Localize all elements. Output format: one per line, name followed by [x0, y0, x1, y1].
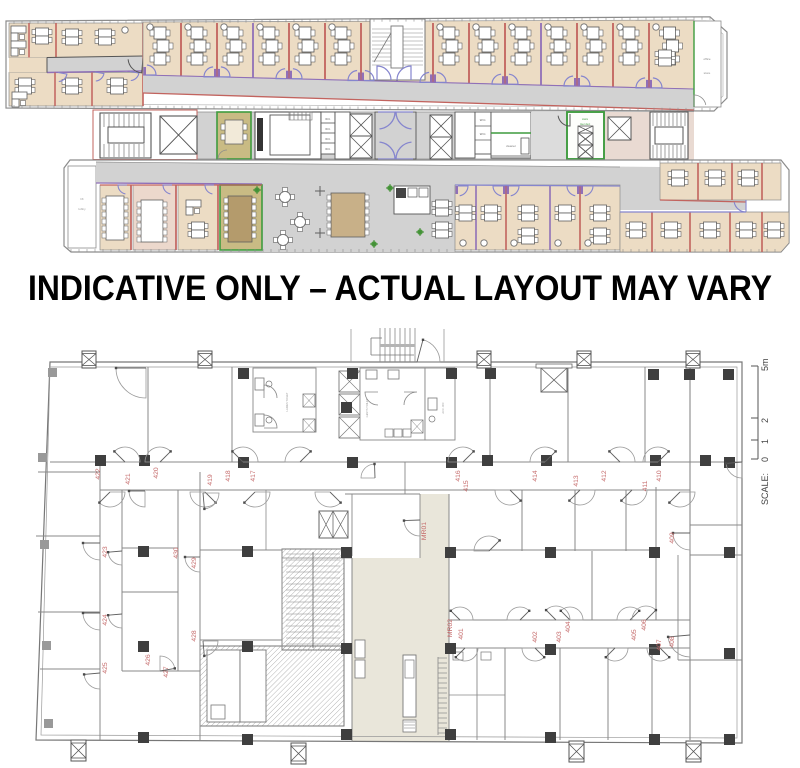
svg-text:INDICATIVE ONLY – ACTUAL LAYOU: INDICATIVE ONLY – ACTUAL LAYOUT MAY VARY — [28, 269, 772, 308]
svg-text:418: 418 — [225, 470, 232, 482]
svg-text:0: 0 — [760, 457, 770, 462]
svg-text:410: 410 — [656, 470, 663, 482]
svg-text:426: 426 — [145, 654, 152, 666]
svg-text:415: 415 — [463, 480, 470, 492]
svg-text:428: 428 — [191, 630, 198, 642]
svg-text:423: 423 — [102, 546, 109, 558]
svg-text:408: 408 — [669, 636, 676, 648]
svg-text:store: store — [704, 71, 711, 75]
svg-text:lift: lift — [81, 197, 84, 201]
svg-text:413: 413 — [573, 475, 580, 487]
svg-text:411: 411 — [642, 480, 649, 491]
svg-text:GENTS TOILET: GENTS TOILET — [365, 398, 369, 417]
svg-text:403: 403 — [556, 631, 563, 643]
svg-text:412: 412 — [601, 470, 608, 482]
svg-text:W.C.: W.C. — [325, 127, 331, 131]
svg-text:417: 417 — [250, 470, 257, 482]
svg-text:416: 416 — [455, 470, 462, 482]
svg-text:W.C.: W.C. — [325, 117, 331, 121]
svg-text:414: 414 — [532, 470, 539, 482]
svg-text:SCALE:: SCALE: — [760, 473, 770, 505]
svg-text:stairs: stairs — [582, 118, 589, 121]
svg-text:407: 407 — [656, 639, 663, 651]
svg-text:404: 404 — [565, 621, 572, 633]
svg-text:430: 430 — [173, 547, 180, 559]
svg-text:ACC. WC: ACC. WC — [441, 402, 445, 413]
svg-text:MR02: MR02 — [447, 619, 454, 637]
svg-text:406: 406 — [641, 619, 648, 631]
svg-text:MR01: MR01 — [421, 522, 428, 540]
svg-text:402: 402 — [532, 631, 539, 643]
svg-text:409: 409 — [669, 532, 676, 544]
svg-text:W.C.: W.C. — [325, 147, 331, 151]
svg-text:424: 424 — [102, 614, 109, 626]
svg-text:420: 420 — [153, 467, 160, 479]
svg-text:421: 421 — [125, 473, 132, 485]
svg-text:W.C.: W.C. — [480, 132, 487, 136]
svg-text:W.C.: W.C. — [325, 137, 331, 141]
svg-text:422: 422 — [95, 468, 102, 480]
svg-text:2: 2 — [760, 418, 770, 423]
svg-text:425: 425 — [102, 662, 109, 674]
svg-text:riser duct: riser duct — [580, 123, 591, 126]
svg-text:419: 419 — [207, 474, 214, 486]
svg-text:W.C.: W.C. — [480, 118, 487, 122]
svg-text:office: office — [703, 57, 710, 61]
svg-text:1: 1 — [760, 439, 770, 444]
svg-text:427: 427 — [163, 666, 170, 678]
svg-text:429: 429 — [191, 557, 198, 569]
svg-text:cleaner: cleaner — [506, 144, 516, 148]
svg-text:401: 401 — [458, 628, 465, 640]
svg-text:5m: 5m — [760, 358, 770, 371]
svg-text:LADIES TOILET: LADIES TOILET — [285, 392, 289, 411]
svg-text:lobby: lobby — [78, 207, 86, 211]
svg-text:405: 405 — [631, 629, 638, 641]
